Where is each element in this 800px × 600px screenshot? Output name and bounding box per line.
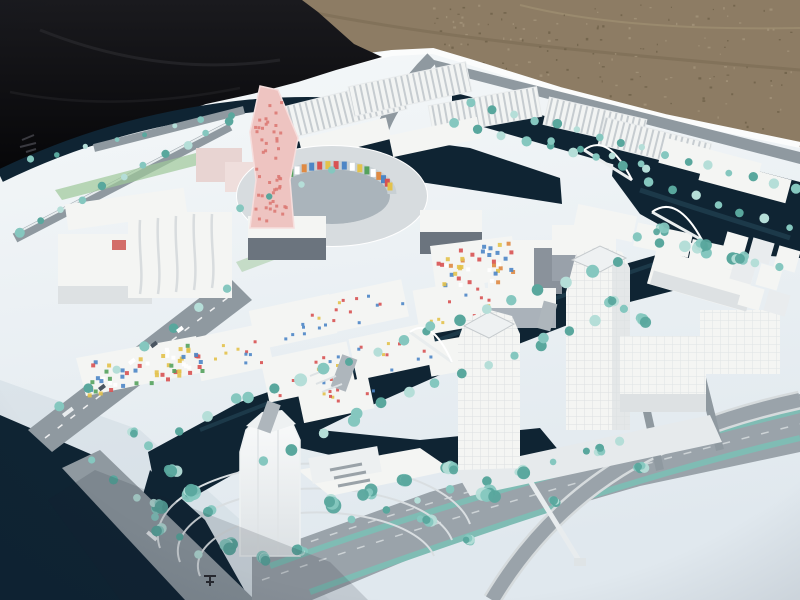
photo-effects [0,0,800,600]
model-photograph [0,0,800,600]
